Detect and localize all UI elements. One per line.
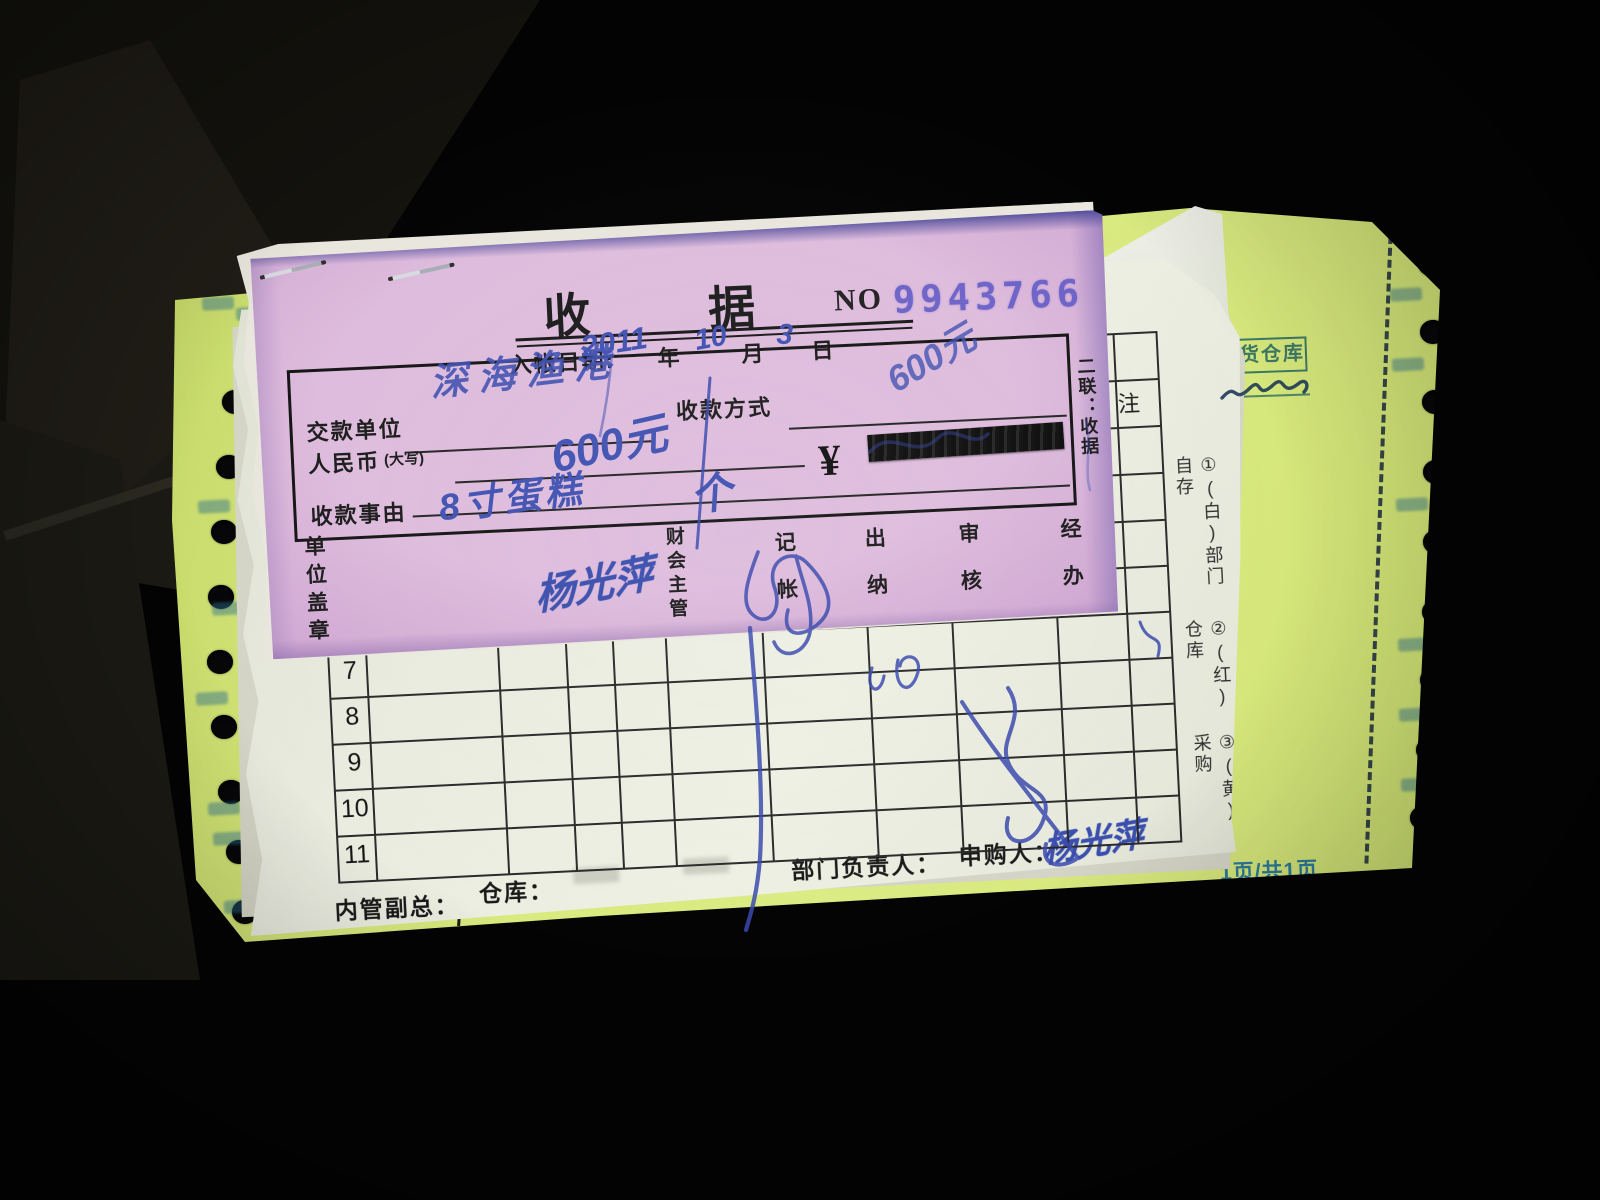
- tractor-hole-right: [1416, 738, 1442, 762]
- table-vline: [665, 635, 678, 865]
- carbon-smudge: [213, 831, 246, 846]
- tractor-hole-right: [1423, 460, 1449, 484]
- deputy-manager-label: 内管副总：: [334, 886, 461, 926]
- table-row-number: 11: [339, 840, 374, 871]
- staple: [388, 262, 455, 281]
- cashier-label: 出纳: [858, 526, 892, 621]
- table-vline: [612, 638, 625, 868]
- accounting-supervisor-label: 财会主管: [660, 526, 691, 623]
- currency-symbol: ¥: [817, 434, 841, 486]
- copy-note-red: ②(红)仓库: [1180, 618, 1237, 720]
- table-vline: [565, 640, 578, 870]
- tractor-hole-right: [1422, 600, 1448, 624]
- payer-label: 交款单位: [306, 411, 403, 447]
- tractor-hole-right: [1422, 390, 1448, 414]
- page-count-label: 1页/共1页: [1220, 853, 1319, 886]
- tractor-hole-right: [1410, 806, 1436, 830]
- table-hline: [332, 703, 1176, 746]
- tractor-hole-left: [211, 520, 237, 544]
- dept-head-label: 部门负责人：: [790, 844, 941, 885]
- reason-label: 收款事由: [310, 495, 407, 531]
- perforation-dashed-line: [1364, 224, 1393, 864]
- method-label: 收款方式: [675, 390, 772, 426]
- remark-column-header: 注: [1117, 386, 1141, 419]
- table-row-number: 7: [332, 656, 367, 687]
- warehouse-label: 仓库：: [478, 871, 555, 909]
- pink-receipt: 收据 NO 9943766 入帐日期: 2011 年 10 月 3 日 交款单位…: [248, 210, 1122, 662]
- table-row-number: 9: [337, 748, 372, 779]
- carbon-smudge: [1401, 777, 1434, 792]
- carbon-smudge: [1396, 497, 1429, 512]
- photo-scene: 发货仓库 1页/共1页 7 8 9 10 11 注 ①(白)部门自存 ②(红)仓…: [0, 0, 1600, 1200]
- copy-note-white: ①(白)部门自存: [1170, 454, 1229, 606]
- accounting-signature: 杨光萍: [533, 540, 654, 623]
- copy-designation-label: 二联：收据: [1072, 356, 1103, 457]
- table-vline: [762, 631, 775, 861]
- amount-label: 人民币: [307, 444, 380, 479]
- tractor-hole-right: [1418, 252, 1444, 276]
- tractor-hole-right: [1420, 668, 1446, 692]
- table-vline: [951, 621, 964, 851]
- carbon-smudge: [202, 296, 235, 311]
- table-hline: [329, 657, 1173, 700]
- carbon-smudge: [208, 801, 241, 816]
- receipt-number-stamp: 9943766: [892, 272, 1084, 322]
- table-vline: [497, 644, 510, 874]
- table-row-number: 10: [337, 794, 372, 825]
- tractor-hole-right: [1420, 320, 1446, 344]
- amount-caps-sublabel: (大写): [384, 447, 425, 470]
- table-vline: [866, 625, 879, 855]
- unit-seal-label: 单位盖章: [298, 535, 333, 648]
- table-hline: [334, 748, 1178, 791]
- tractor-hole-left: [207, 650, 233, 674]
- carbon-smudge: [1390, 287, 1423, 302]
- auditor-label: 审核: [952, 522, 986, 617]
- staple: [259, 260, 326, 280]
- handler-label: 经办: [1054, 517, 1088, 612]
- tractor-hole-right: [1423, 530, 1449, 554]
- carbon-smudge: [198, 499, 231, 514]
- carbon-smudge: [1399, 707, 1432, 722]
- bookkeeper-label: 记帐: [768, 530, 802, 625]
- table-row-number: 8: [335, 702, 370, 733]
- carbon-smudge: [196, 691, 229, 706]
- carbon-smudge: [1392, 357, 1425, 372]
- tractor-hole-left: [211, 715, 237, 739]
- carbon-smudge: [1398, 637, 1431, 652]
- table-vline: [1056, 616, 1069, 846]
- receipt-no-label: NO: [833, 282, 884, 318]
